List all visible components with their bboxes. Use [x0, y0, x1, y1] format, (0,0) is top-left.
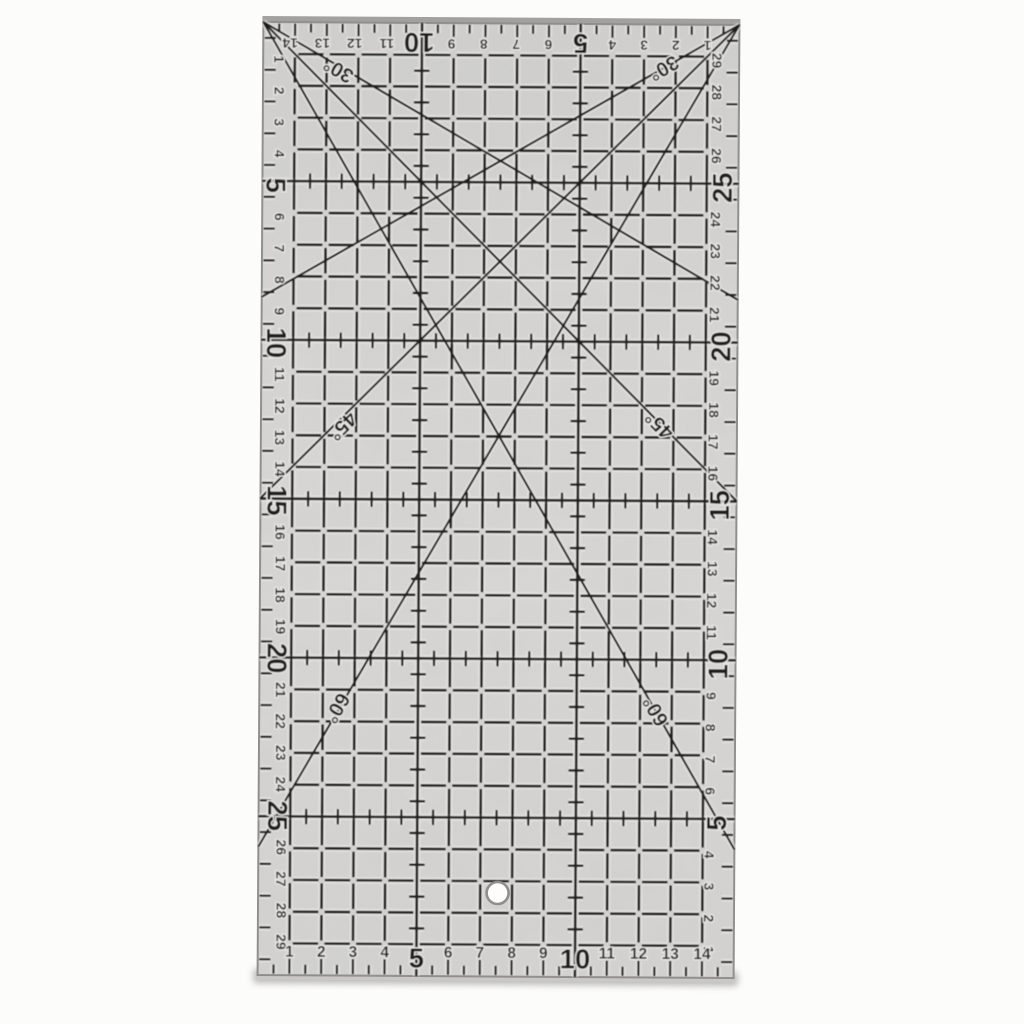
svg-text:15: 15 [704, 490, 735, 521]
svg-text:29: 29 [709, 53, 725, 69]
svg-text:22: 22 [273, 713, 289, 729]
svg-text:7: 7 [475, 945, 484, 962]
svg-text:6: 6 [702, 787, 718, 795]
svg-text:15: 15 [261, 485, 292, 516]
svg-text:26: 26 [708, 148, 724, 164]
svg-text:28: 28 [273, 903, 289, 919]
svg-text:5: 5 [701, 815, 732, 830]
svg-text:13: 13 [314, 35, 330, 51]
svg-text:16: 16 [705, 466, 721, 482]
svg-text:16: 16 [272, 524, 288, 540]
svg-text:6: 6 [272, 213, 288, 221]
svg-text:9: 9 [539, 945, 548, 962]
svg-text:12: 12 [347, 36, 363, 52]
svg-text:9: 9 [703, 692, 719, 700]
svg-text:24: 24 [708, 212, 724, 228]
svg-text:2: 2 [701, 914, 717, 922]
svg-text:3: 3 [701, 883, 717, 891]
svg-text:13: 13 [272, 430, 288, 446]
svg-text:14: 14 [282, 35, 298, 51]
svg-text:6: 6 [544, 37, 552, 53]
svg-text:28: 28 [709, 84, 725, 100]
svg-text:26: 26 [273, 839, 289, 855]
svg-text:11: 11 [599, 946, 616, 963]
svg-text:6: 6 [444, 945, 453, 962]
svg-text:23: 23 [707, 243, 723, 259]
svg-text:3: 3 [640, 37, 648, 53]
svg-text:24: 24 [273, 776, 289, 792]
svg-text:4: 4 [271, 150, 287, 158]
svg-text:4: 4 [702, 851, 718, 859]
svg-text:5: 5 [573, 28, 588, 59]
svg-text:23: 23 [273, 745, 289, 761]
svg-text:11: 11 [379, 36, 394, 52]
svg-text:14: 14 [705, 529, 721, 545]
svg-text:13: 13 [662, 946, 680, 963]
svg-text:22: 22 [707, 275, 723, 291]
svg-text:9: 9 [447, 36, 455, 52]
svg-text:17: 17 [272, 556, 288, 572]
svg-text:9: 9 [272, 307, 288, 315]
svg-text:12: 12 [704, 593, 720, 609]
svg-text:5: 5 [260, 177, 291, 192]
svg-text:1: 1 [271, 55, 287, 63]
svg-text:2: 2 [271, 87, 287, 95]
svg-text:21: 21 [707, 307, 723, 323]
svg-text:21: 21 [273, 682, 289, 698]
svg-text:10: 10 [261, 327, 292, 358]
svg-text:8: 8 [480, 36, 488, 52]
svg-text:11: 11 [272, 367, 288, 382]
svg-text:8: 8 [507, 945, 516, 962]
svg-text:25: 25 [262, 800, 293, 831]
svg-text:14: 14 [272, 461, 288, 477]
svg-text:12: 12 [272, 398, 288, 414]
svg-text:19: 19 [273, 619, 289, 635]
svg-text:20: 20 [705, 331, 736, 362]
svg-text:7: 7 [702, 755, 718, 763]
svg-text:8: 8 [272, 276, 288, 284]
svg-text:25: 25 [707, 172, 738, 203]
svg-text:14: 14 [693, 946, 711, 963]
svg-text:27: 27 [709, 116, 725, 132]
svg-text:5: 5 [409, 942, 424, 973]
svg-text:20: 20 [262, 643, 293, 674]
svg-text:27: 27 [273, 871, 289, 887]
svg-text:3: 3 [271, 118, 287, 126]
svg-text:4: 4 [380, 944, 389, 961]
svg-text:1: 1 [703, 38, 711, 54]
svg-text:12: 12 [630, 946, 647, 963]
svg-text:8: 8 [703, 724, 719, 732]
svg-text:18: 18 [706, 402, 722, 418]
svg-text:13: 13 [704, 561, 720, 577]
svg-text:11: 11 [704, 625, 720, 640]
svg-text:4: 4 [608, 37, 616, 53]
svg-text:18: 18 [272, 587, 288, 603]
svg-text:7: 7 [272, 244, 288, 252]
svg-text:3: 3 [349, 944, 358, 961]
svg-text:2: 2 [317, 944, 326, 961]
svg-text:19: 19 [706, 370, 722, 386]
svg-text:10: 10 [702, 649, 733, 680]
svg-text:10: 10 [404, 27, 435, 58]
svg-text:7: 7 [512, 37, 520, 53]
svg-text:17: 17 [706, 434, 722, 450]
svg-text:10: 10 [560, 943, 591, 974]
svg-text:2: 2 [672, 38, 680, 54]
svg-text:1: 1 [285, 944, 294, 961]
